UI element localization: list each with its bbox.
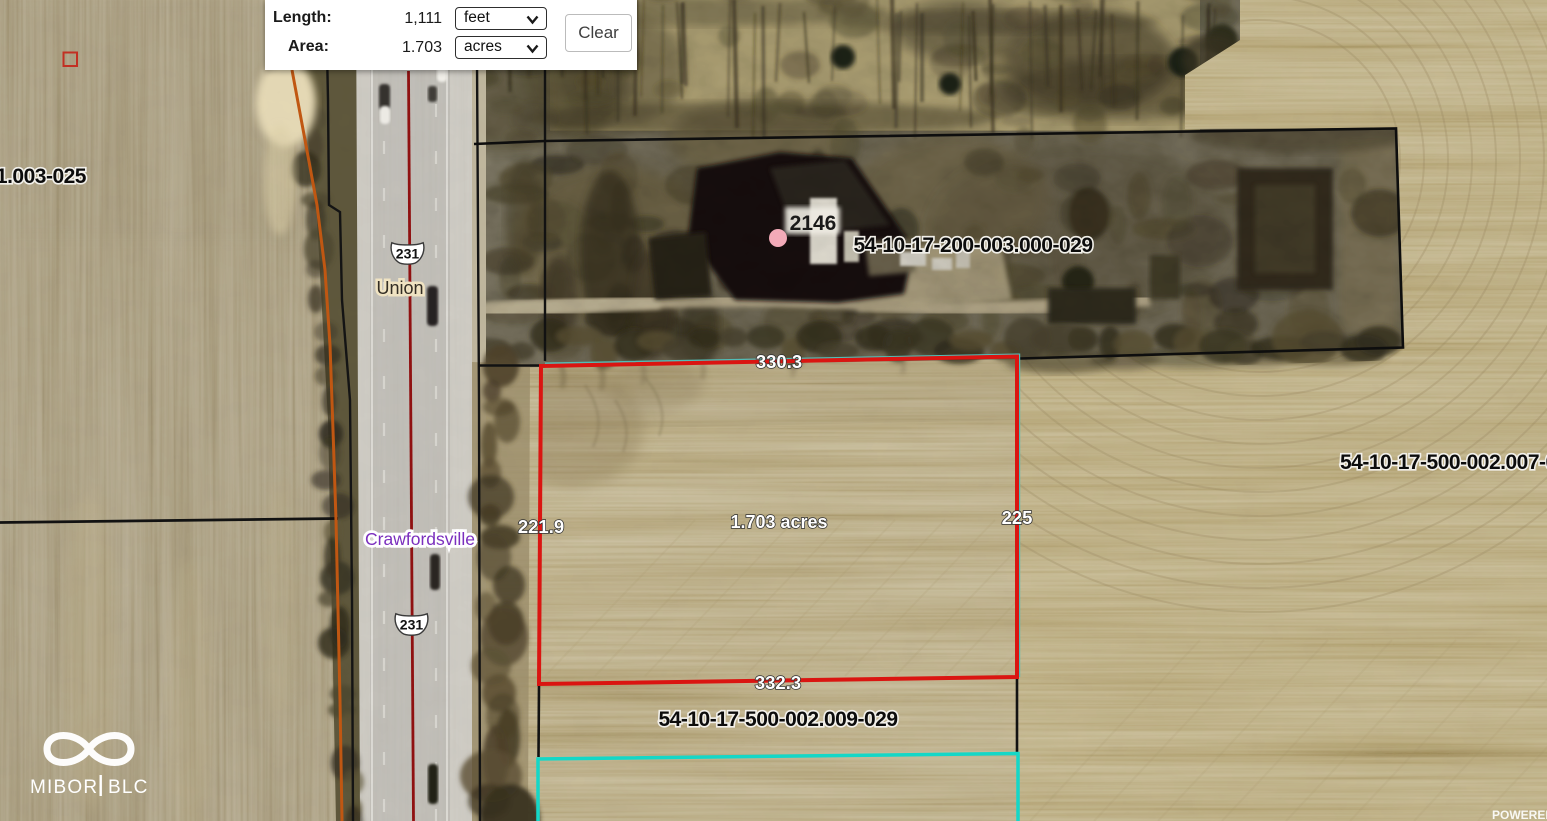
svg-text:231: 231	[396, 245, 420, 261]
svg-text:54-10-17-500-002.007-0: 54-10-17-500-002.007-0	[1340, 451, 1547, 474]
svg-text:330.3: 330.3	[756, 351, 802, 372]
svg-text:54-10-17-200-003.000-029: 54-10-17-200-003.000-029	[853, 234, 1092, 257]
svg-text:231: 231	[400, 616, 424, 632]
svg-text:221.9: 221.9	[518, 516, 564, 537]
svg-text:225: 225	[1002, 507, 1033, 528]
svg-text:54-10-17-500-002.009-029: 54-10-17-500-002.009-029	[658, 708, 897, 731]
svg-text:Crawfordsville: Crawfordsville	[365, 529, 475, 549]
svg-text:POWERED: POWERED	[1492, 808, 1547, 821]
svg-text:2146: 2146	[790, 212, 837, 235]
svg-text:332.3: 332.3	[755, 672, 801, 693]
svg-text:Union: Union	[376, 278, 423, 298]
svg-text:1.003-025: 1.003-025	[0, 165, 87, 188]
svg-text:BLC: BLC	[108, 777, 149, 798]
svg-text:1.703 acres: 1.703 acres	[730, 512, 827, 532]
svg-text:MIBOR: MIBOR	[30, 777, 98, 798]
